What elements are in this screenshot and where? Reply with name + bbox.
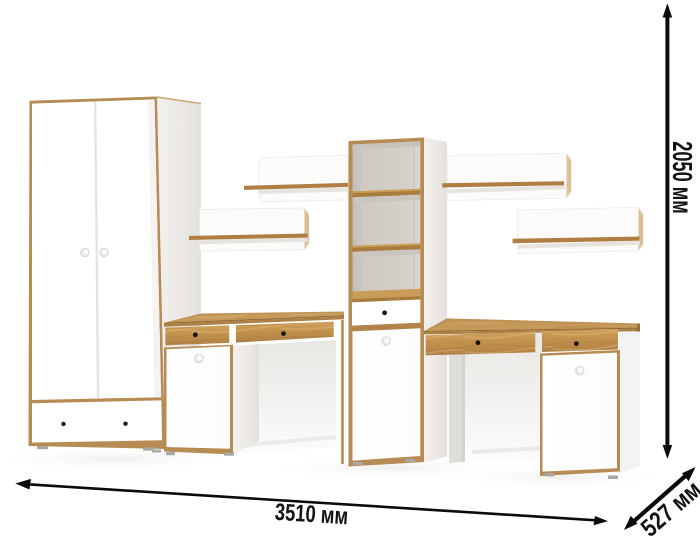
svg-text:3510 мм: 3510 мм <box>274 499 349 531</box>
svg-text:2050 мм: 2050 мм <box>667 141 698 214</box>
